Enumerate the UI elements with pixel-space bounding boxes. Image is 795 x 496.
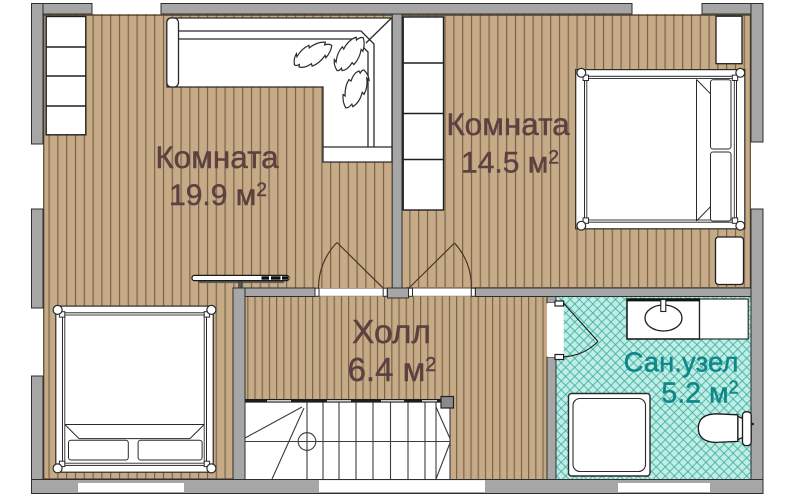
svg-text:Комната: Комната	[446, 106, 570, 142]
svg-text:6.4 м2: 6.4 м2	[348, 351, 437, 388]
svg-text:Холл: Холл	[352, 314, 431, 351]
svg-text:Комната: Комната	[155, 139, 279, 175]
svg-text:19.9 м2: 19.9 м2	[169, 179, 267, 212]
svg-text:5.2 м2: 5.2 м2	[661, 378, 738, 410]
svg-text:Сан.узел: Сан.узел	[624, 347, 739, 378]
svg-text:14.5 м2: 14.5 м2	[461, 147, 559, 180]
